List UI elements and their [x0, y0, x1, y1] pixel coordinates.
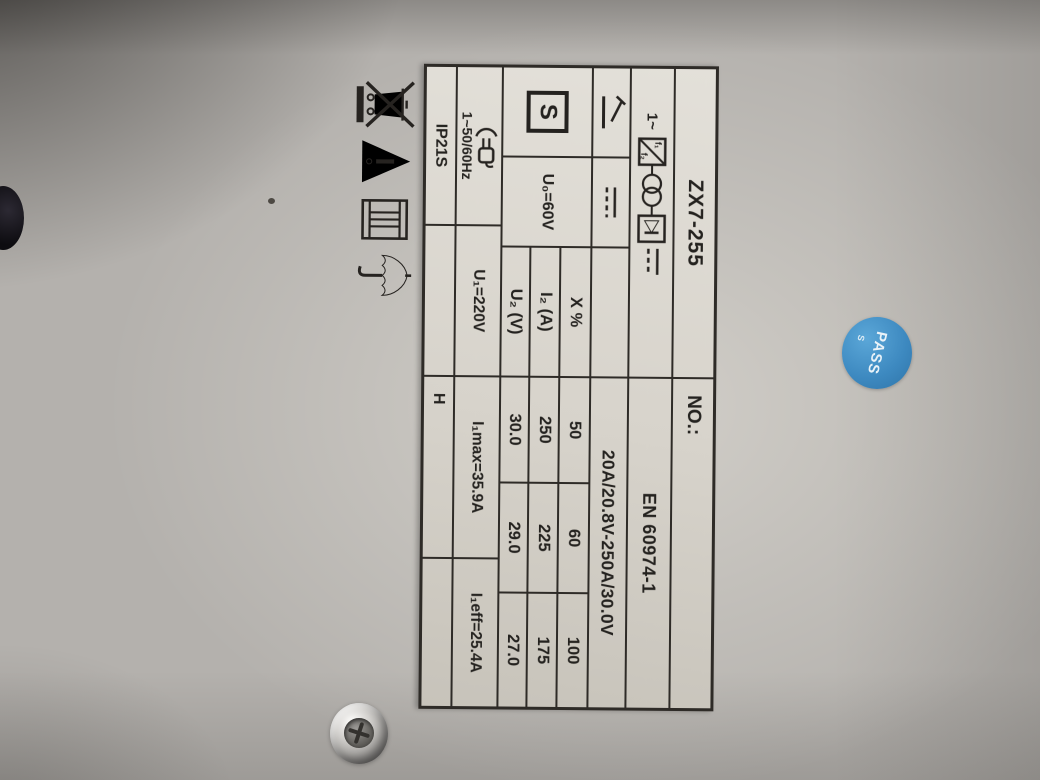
panel-hole — [0, 186, 24, 250]
process-symbol-cell — [593, 68, 630, 156]
serial-label: NO.: — [682, 395, 704, 435]
duty-column-2: 60 225 29.0 — [499, 481, 588, 592]
model-cell: ZX7-255 — [673, 69, 716, 377]
model-number: ZX7-255 — [682, 179, 707, 267]
i1eff-value: I₁eff=25.4A — [466, 593, 485, 673]
voltage-label: U₂ (V) — [501, 247, 531, 375]
f1-label: f₁ — [653, 142, 663, 149]
crossed-out-wheelie-bin-icon — [354, 79, 416, 130]
duty-value: 100 — [557, 594, 587, 707]
duty-column-1: 50 250 30.0 — [500, 375, 589, 482]
voltage-value: 29.0 — [499, 483, 529, 591]
s-mark-cell: S — [503, 67, 592, 156]
rating-plate: ZX7-255 NO.: 1~ f₁ f₂ — [418, 64, 719, 712]
umbrella-icon — [353, 250, 415, 301]
exclamation-triangle-icon — [354, 136, 416, 187]
duty-label-column: X % I₂ (A) U₂ (V) — [501, 245, 590, 376]
output-range-cell: 20A/20.8V-250A/30.0V — [588, 376, 627, 707]
f2-label: f₂ — [639, 153, 649, 160]
no-load-voltage-cell: U₀=60V — [502, 155, 591, 246]
pass-sticker: PASS S — [842, 317, 912, 389]
empty-cell — [421, 557, 451, 706]
standard-number: EN 60974-1 — [638, 493, 660, 594]
supply-freq-cell: 1~50/60Hz — [457, 67, 502, 224]
dc-current-icon — [602, 183, 620, 221]
current-value: 175 — [528, 594, 558, 707]
current-value: 250 — [530, 378, 560, 482]
rectifier-icon — [638, 216, 664, 242]
ip-class: IP21S — [432, 124, 450, 168]
supply-voltage: U₁=220V — [469, 269, 488, 332]
spacer-cell — [591, 246, 628, 376]
pass-sticker-submark: S — [855, 334, 866, 342]
rating-plate-group: ZX7-255 NO.: 1~ f₁ f₂ — [334, 63, 719, 708]
duty-value: 50 — [559, 378, 589, 482]
output-range: 20A/20.8V-250A/30.0V — [597, 450, 620, 636]
duty-column-3: 100 175 27.0 — [498, 591, 587, 707]
no-load-voltage: U₀=60V — [538, 173, 556, 230]
instruction-book-icon — [353, 193, 415, 244]
safety-icons-row — [353, 79, 417, 301]
current-value: 225 — [529, 484, 559, 592]
duty-value: 60 — [558, 484, 588, 592]
s-mark-letter: S — [534, 104, 562, 120]
voltage-value: 30.0 — [500, 377, 530, 481]
screw-recess — [344, 718, 374, 748]
single-phase-inverter-transformer-rectifier-icon: 1~ f₁ f₂ — [633, 111, 671, 335]
mma-electrode-icon — [596, 91, 626, 133]
duty-cycle-label: X % — [560, 248, 590, 376]
supply-voltage-cell: U₁=220V — [455, 224, 500, 375]
current-symbol-cell — [592, 156, 629, 246]
insulation-class-cell: H — [423, 375, 454, 557]
ip-class-cell: IP21S — [426, 67, 456, 224]
machine-panel-photo: ZX7-255 NO.: 1~ f₁ f₂ — [0, 0, 1040, 780]
serial-cell: NO.: — [670, 377, 713, 708]
panel-speck — [268, 198, 275, 204]
power-source-symbol-cell: 1~ f₁ f₂ — [629, 69, 674, 377]
i1max-cell: I₁max=35.9A — [454, 375, 500, 557]
pass-sticker-text: PASS — [864, 330, 890, 376]
voltage-value: 27.0 — [498, 593, 528, 706]
phase-label: 1~ — [643, 113, 660, 130]
i1max-value: I₁max=35.9A — [467, 421, 486, 513]
empty-cell — [424, 224, 454, 375]
phillips-cross-icon — [340, 714, 378, 752]
i1eff-cell: I₁eff=25.4A — [452, 557, 497, 706]
s-mark-icon: S — [526, 91, 568, 133]
mains-plug-icon — [474, 123, 498, 169]
current-label: I₂ (A) — [531, 248, 561, 376]
insulation-class: H — [430, 393, 448, 405]
standard-cell: EN 60974-1 — [626, 377, 671, 708]
screw — [330, 703, 388, 764]
supply-frequency: 1~50/60Hz — [460, 112, 475, 180]
